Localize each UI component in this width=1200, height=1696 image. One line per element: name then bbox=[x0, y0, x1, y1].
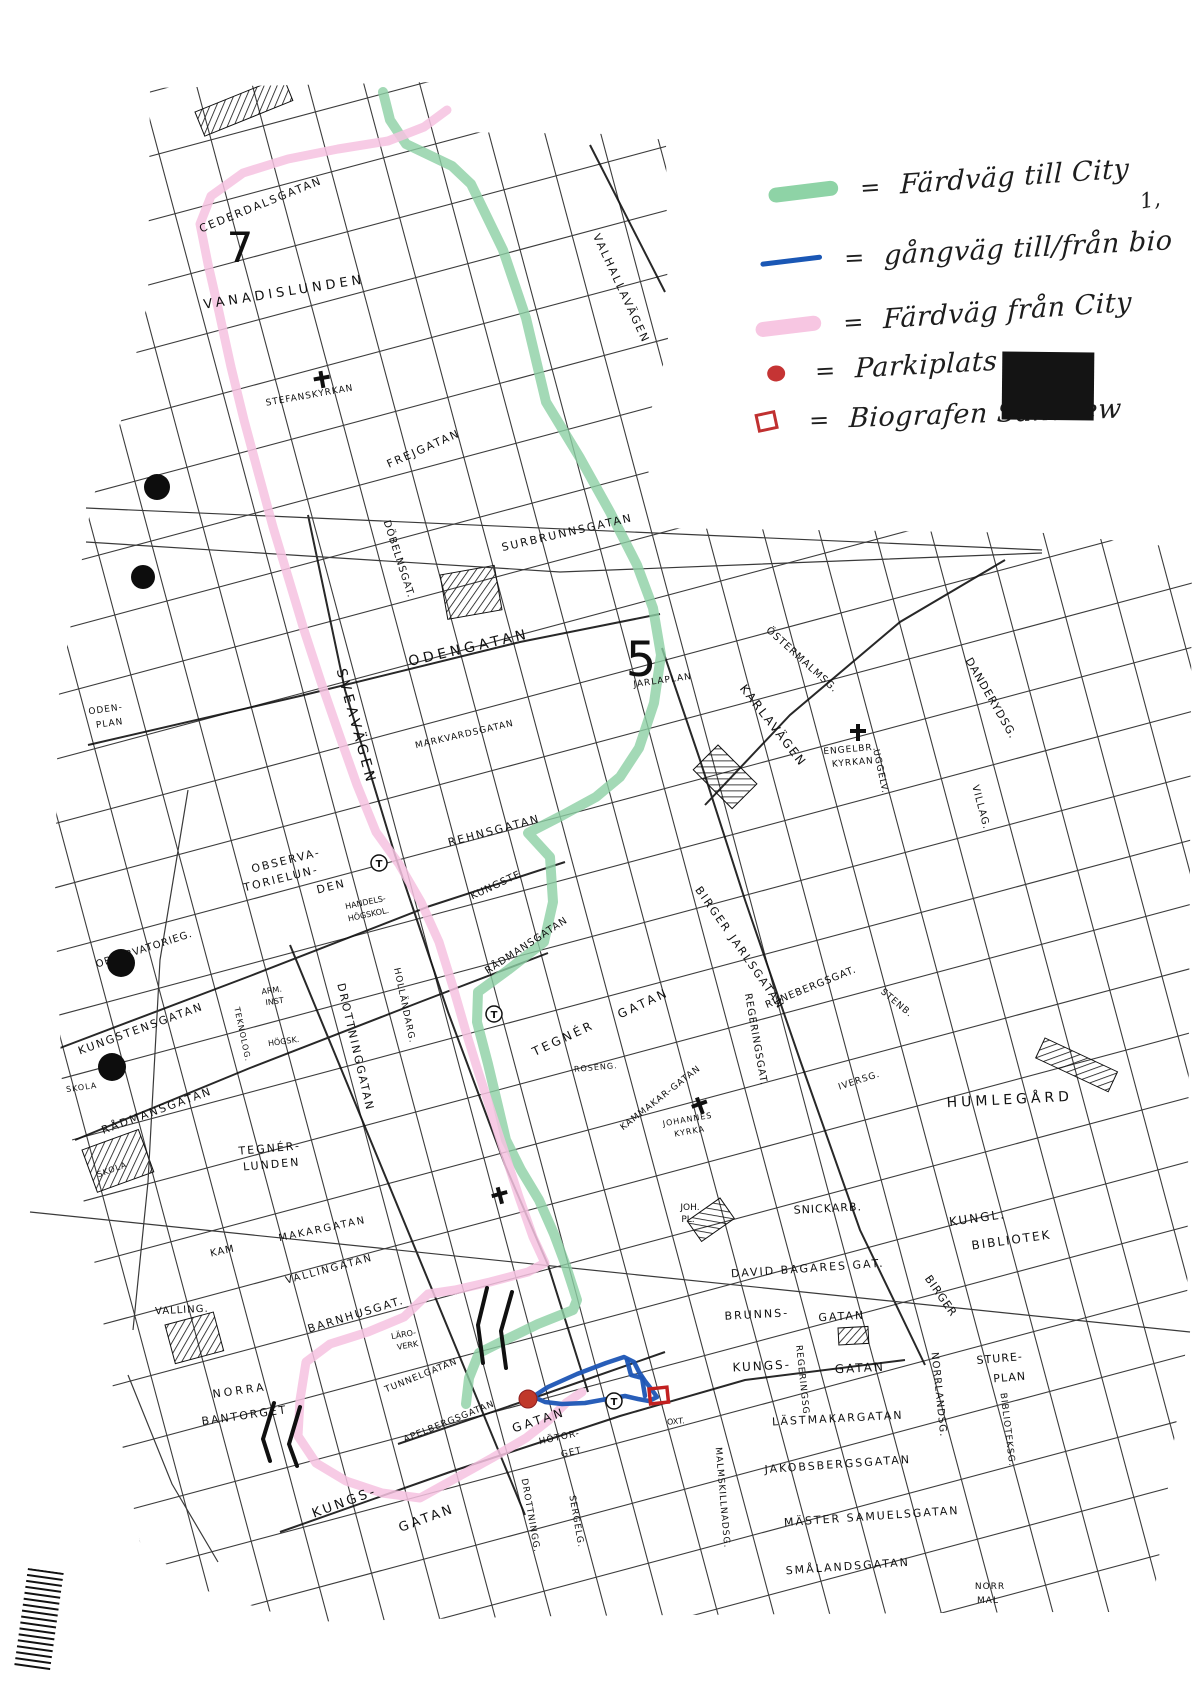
street-label: HUMLEGÅRD bbox=[946, 1088, 1073, 1112]
street-karlavagen bbox=[705, 560, 1005, 805]
street-label: KUNGSTE bbox=[469, 869, 523, 902]
street-label: SERGELG. bbox=[566, 1495, 585, 1549]
grid-street bbox=[0, 754, 1200, 1220]
street-label: JOHANNES bbox=[661, 1111, 713, 1129]
street-label: OXT. bbox=[667, 1416, 685, 1427]
street-label: KYRKA bbox=[674, 1124, 706, 1138]
street-label: HOLLÄNDARG. bbox=[391, 967, 418, 1045]
blue-line-swatch bbox=[760, 254, 822, 267]
street-label: BANTORGET bbox=[201, 1403, 288, 1428]
street-label: VILLAG. bbox=[969, 784, 991, 831]
street-label: BARNHUSGAT. bbox=[306, 1294, 406, 1336]
railway-hatch bbox=[14, 1568, 64, 1672]
street-label: JOH. bbox=[679, 1203, 699, 1213]
street-odengatan bbox=[88, 614, 660, 745]
street-label: VALLINGATAN bbox=[284, 1253, 374, 1287]
street-label: KAM bbox=[209, 1244, 236, 1260]
street-label: ENGELBR. bbox=[823, 743, 877, 758]
street-label: BRUNNS- bbox=[724, 1306, 789, 1322]
equals-sign: = bbox=[842, 307, 864, 336]
street-label: DROTTNINGGATAN bbox=[334, 982, 376, 1113]
street-label: ODEN- bbox=[88, 703, 124, 718]
street-label: STURE- bbox=[976, 1350, 1023, 1367]
street-label: GATAN bbox=[834, 1360, 885, 1377]
street-label: SKOLA bbox=[66, 1081, 98, 1094]
hatched-block bbox=[1036, 1038, 1118, 1092]
hatched-block bbox=[838, 1326, 869, 1345]
street-label: STENB. bbox=[878, 987, 914, 1020]
street-label: UGGELV. bbox=[870, 748, 889, 794]
legend-item-route-from-city: = Färdväg från City bbox=[754, 287, 1133, 344]
street-label: HÖTOR- bbox=[538, 1428, 581, 1447]
black-dot-marker bbox=[107, 949, 135, 977]
grid-street bbox=[0, 1533, 1200, 1696]
grid-street bbox=[0, 574, 1200, 1040]
street-label: RÅDMANSGATAN bbox=[482, 913, 570, 976]
street-label: GATAN bbox=[615, 985, 671, 1021]
equals-sign: = bbox=[843, 243, 865, 272]
legend-item-parking: = Parkiplats bbox=[762, 346, 998, 389]
metro-station-letter: T bbox=[611, 1397, 618, 1408]
equals-sign: = bbox=[859, 172, 881, 201]
legend-item-walk-route: = gångväg till/från bio bbox=[759, 225, 1173, 278]
street-label: MAL bbox=[977, 1596, 999, 1606]
grid-street bbox=[0, 1473, 1200, 1696]
street-label: APELBERGSGATAN bbox=[402, 1399, 496, 1445]
black-dot-marker bbox=[131, 565, 155, 589]
street-label: ROSENG. bbox=[574, 1061, 618, 1074]
equals-sign: = bbox=[814, 356, 836, 385]
district-number: 5 bbox=[626, 632, 657, 688]
street-label: SNICKARB. bbox=[793, 1200, 862, 1217]
street-label: PL. bbox=[681, 1215, 694, 1225]
street-label: GATAN bbox=[397, 1502, 457, 1536]
street-label: NORR bbox=[975, 1582, 1005, 1592]
legend-item-route-to-city: = Färdväg till City bbox=[767, 153, 1130, 209]
street-label: ÖSTERMALMSG. bbox=[764, 624, 841, 696]
street-label: TEGNÉR- bbox=[237, 1139, 301, 1157]
scan-crease-line bbox=[128, 1375, 218, 1562]
street-label: DÖBELNSGAT. bbox=[381, 518, 418, 599]
red-dot-swatch bbox=[767, 365, 786, 382]
street-label: DEN bbox=[315, 877, 347, 897]
street-label: MAKARGATAN bbox=[278, 1215, 367, 1244]
cinema-square-marker bbox=[649, 1387, 668, 1404]
street-label: ODENGATAN bbox=[407, 626, 531, 669]
parking-dot-marker bbox=[519, 1390, 537, 1408]
street-label: NORRA bbox=[212, 1380, 268, 1400]
street-label: PLAN bbox=[95, 717, 124, 731]
grid-street bbox=[0, 1353, 1200, 1696]
street-label: TUNNELGATAN bbox=[383, 1357, 459, 1396]
street-label: KUNGL. bbox=[948, 1207, 1007, 1229]
street-label: GET bbox=[560, 1446, 583, 1460]
legend-label-route-from-city: Färdväg från City bbox=[883, 287, 1132, 336]
grid-street bbox=[0, 1233, 1200, 1696]
street-label: LÄRO- bbox=[390, 1327, 417, 1341]
street-label: HÖGSK. bbox=[267, 1034, 299, 1048]
street-label: LÄSTMAKARGATAN bbox=[772, 1409, 904, 1429]
handwritten-pen-mark bbox=[501, 1292, 512, 1368]
legend: = Färdväg till City = gångväg till/från … bbox=[0, 0, 1200, 500]
red-square-swatch bbox=[754, 410, 778, 433]
hatched-block bbox=[165, 1312, 224, 1364]
street-label: TEGNÉR bbox=[529, 1017, 597, 1059]
street-label: INST bbox=[265, 996, 284, 1007]
grid-street bbox=[0, 1413, 1200, 1696]
metro-station-letter: T bbox=[376, 859, 383, 870]
grid-street bbox=[0, 1053, 1200, 1519]
metro-station-letter: T bbox=[491, 1010, 498, 1021]
equals-sign: = bbox=[809, 405, 830, 434]
hatched-block bbox=[440, 565, 502, 619]
street-label: KARLAVÄGEN bbox=[737, 681, 810, 769]
street-label: REGERINGSG. bbox=[793, 1345, 811, 1419]
handwritten-superscript: 1, bbox=[1138, 186, 1162, 213]
street-label: JAKOBSBERGSGATAN bbox=[763, 1453, 911, 1476]
street-label: MALMSKILLNADSG. bbox=[713, 1447, 732, 1549]
scan-crease-line bbox=[133, 790, 188, 1330]
street-label: SURBRUNNSGATAN bbox=[500, 511, 634, 554]
legend-label-walk-route: gångväg till/från bio bbox=[884, 225, 1173, 271]
street-label: DANDERYDSG. bbox=[963, 655, 1020, 741]
pink-highlight-swatch bbox=[755, 315, 822, 338]
scanned-map-page: CEDERDALSGATANVANADISLUNDENSTEFANSKYRKAN… bbox=[0, 0, 1200, 1696]
redaction-box bbox=[1002, 352, 1095, 421]
street-label: TEKNOLOG. bbox=[232, 1005, 253, 1062]
grid-street bbox=[0, 1592, 1200, 1696]
street-label: NORRLANDSG. bbox=[929, 1352, 949, 1438]
street-label: DROTTNINGG. bbox=[519, 1478, 542, 1554]
street-label: REGERINGSGAT. bbox=[742, 992, 769, 1086]
legend-label-route-to-city: Färdväg till City bbox=[900, 153, 1130, 200]
grid-street bbox=[0, 634, 1200, 1100]
street-label: LUNDEN bbox=[242, 1156, 300, 1174]
hatched-block bbox=[693, 745, 757, 809]
street-label: MÄSTER SAMUELSGATAN bbox=[784, 1504, 960, 1529]
street-label: GATAN bbox=[818, 1309, 865, 1324]
grid-street bbox=[0, 514, 1200, 980]
scan-crease-line bbox=[86, 542, 1042, 572]
street-label: VERK bbox=[396, 1339, 419, 1352]
grid-street bbox=[0, 694, 1200, 1160]
church-cross-icon bbox=[490, 1185, 510, 1206]
street-label: ARM. bbox=[261, 985, 283, 997]
street-label: IVERSG. bbox=[837, 1070, 881, 1093]
street-label: KYRKAN bbox=[831, 756, 874, 770]
street-label: KUNGSTENSGATAN bbox=[76, 1000, 205, 1058]
green-highlight-swatch bbox=[768, 180, 839, 203]
street-label: KUNGS- bbox=[732, 1357, 791, 1374]
street-label: BIBLIOTEKSG. bbox=[997, 1392, 1016, 1467]
street-label: DAVID BAGARES GAT. bbox=[731, 1257, 885, 1281]
street-label: PLAN bbox=[993, 1370, 1027, 1386]
legend-label-parking: Parkiplats bbox=[855, 346, 999, 385]
black-dot-marker bbox=[98, 1053, 126, 1081]
